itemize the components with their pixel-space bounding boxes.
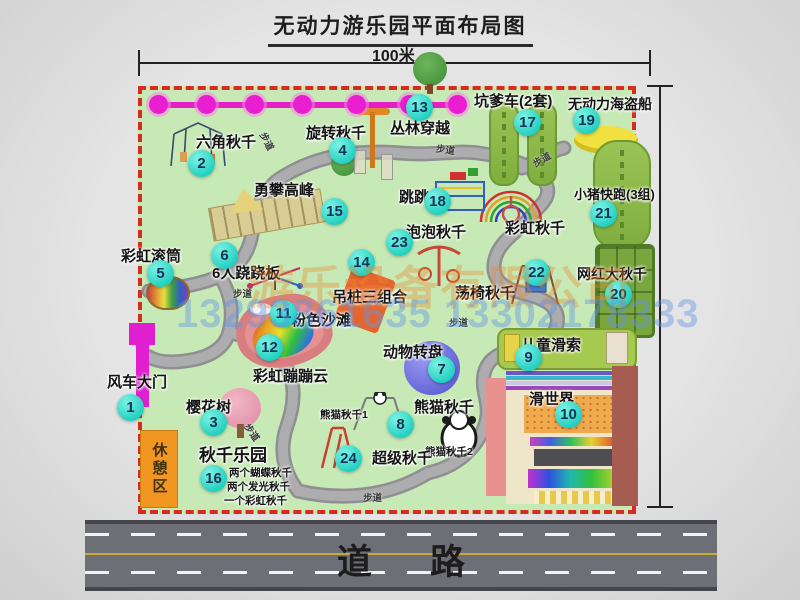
label-bubble-swing: 泡泡秋千 bbox=[406, 221, 466, 242]
marker-21: 21 bbox=[590, 200, 617, 227]
label-kengdie-car: 坑爹车(2套) bbox=[474, 90, 552, 111]
label-panda-swing-2: 熊猫秋千2 bbox=[425, 444, 473, 459]
park-layout-plan: 无动力游乐园平面布局图 100米 120米 bbox=[0, 0, 800, 600]
slide-world-wall bbox=[612, 366, 638, 506]
marker-13: 13 bbox=[406, 94, 433, 121]
marker-6: 6 bbox=[211, 242, 238, 269]
label-windmill-gate: 风车大门 bbox=[107, 371, 167, 392]
swing-seat bbox=[354, 150, 366, 174]
marker-5: 5 bbox=[147, 260, 174, 287]
slide-rainbow-stripe bbox=[530, 437, 612, 446]
walkway-tag: 步道 bbox=[435, 141, 456, 158]
marker-3: 3 bbox=[200, 409, 227, 436]
label-swing-park: 秋千乐园 bbox=[199, 441, 267, 466]
slide-stripe bbox=[506, 376, 612, 380]
marker-4: 4 bbox=[329, 137, 356, 164]
label-rainbow-swing: 彩虹秋千 bbox=[505, 217, 565, 238]
tree-icon bbox=[413, 52, 447, 86]
slide-dark-stripe bbox=[534, 449, 612, 466]
road: 道路 bbox=[85, 520, 717, 591]
road-label: 道路 bbox=[85, 534, 717, 585]
watermark-phones: 13293861635 13302178333 bbox=[176, 292, 700, 337]
marker-9: 9 bbox=[515, 344, 542, 371]
chain-dot bbox=[347, 95, 366, 114]
label-swing-park-sub1: 两个蝴蝶秋千 bbox=[229, 465, 292, 480]
marker-10: 10 bbox=[555, 401, 582, 428]
marker-2: 2 bbox=[188, 150, 215, 177]
label-panda-swing: 熊猫秋千 bbox=[414, 396, 474, 417]
marker-19: 19 bbox=[573, 107, 600, 134]
chain-dot bbox=[149, 95, 168, 114]
label-swing-park-sub3: 一个彩虹秋千 bbox=[224, 493, 287, 508]
chain-dot bbox=[245, 95, 264, 114]
dimension-tick-right-bottom bbox=[647, 506, 673, 508]
label-panda-swing-1: 熊猫秋千1 bbox=[320, 407, 368, 422]
slide-yellow-stripe bbox=[534, 491, 612, 504]
label-hexagon-swing: 六角秋千 bbox=[196, 131, 256, 152]
rest-area-label: 休憩区 bbox=[149, 442, 170, 496]
marker-24: 24 bbox=[335, 445, 362, 472]
page-title: 无动力游乐园平面布局图 bbox=[0, 10, 800, 47]
label-climbing-peak: 勇攀高峰 bbox=[254, 179, 314, 200]
swing-seat bbox=[381, 154, 393, 180]
slide-stripe bbox=[506, 371, 612, 375]
label-swing-park-sub2: 两个发光秋千 bbox=[227, 479, 290, 494]
marker-16: 16 bbox=[200, 465, 227, 492]
marker-7: 7 bbox=[428, 356, 455, 383]
dimension-tick-top-right bbox=[649, 50, 651, 76]
label-super-swing: 超级秋千 bbox=[372, 447, 432, 468]
windmill-gate-icon bbox=[129, 323, 155, 345]
slide-stripe bbox=[506, 381, 612, 385]
chain-dot bbox=[293, 95, 312, 114]
marker-18: 18 bbox=[424, 188, 451, 215]
dimension-tick-top-left bbox=[138, 50, 140, 76]
slide-rainbow-stripe bbox=[528, 469, 612, 488]
slide-world-pink-strip bbox=[486, 378, 508, 496]
chain-dot bbox=[197, 95, 216, 114]
marker-12: 12 bbox=[256, 334, 283, 361]
label-rainbow-cloud: 彩虹蹦蹦云 bbox=[253, 365, 328, 386]
walkway-tag: 步道 bbox=[363, 490, 382, 504]
marker-1: 1 bbox=[117, 394, 144, 421]
rest-area: 休憩区 bbox=[140, 430, 178, 508]
label-piggy-run: 小猪快跑(3组) bbox=[574, 184, 655, 203]
marker-15: 15 bbox=[321, 198, 348, 225]
dimension-tick-right-top bbox=[647, 85, 673, 87]
rotating-swing-pole bbox=[370, 112, 375, 168]
marker-8: 8 bbox=[387, 411, 414, 438]
chain-dot bbox=[448, 95, 467, 114]
marker-17: 17 bbox=[514, 109, 541, 136]
tree-trunk bbox=[427, 84, 433, 94]
